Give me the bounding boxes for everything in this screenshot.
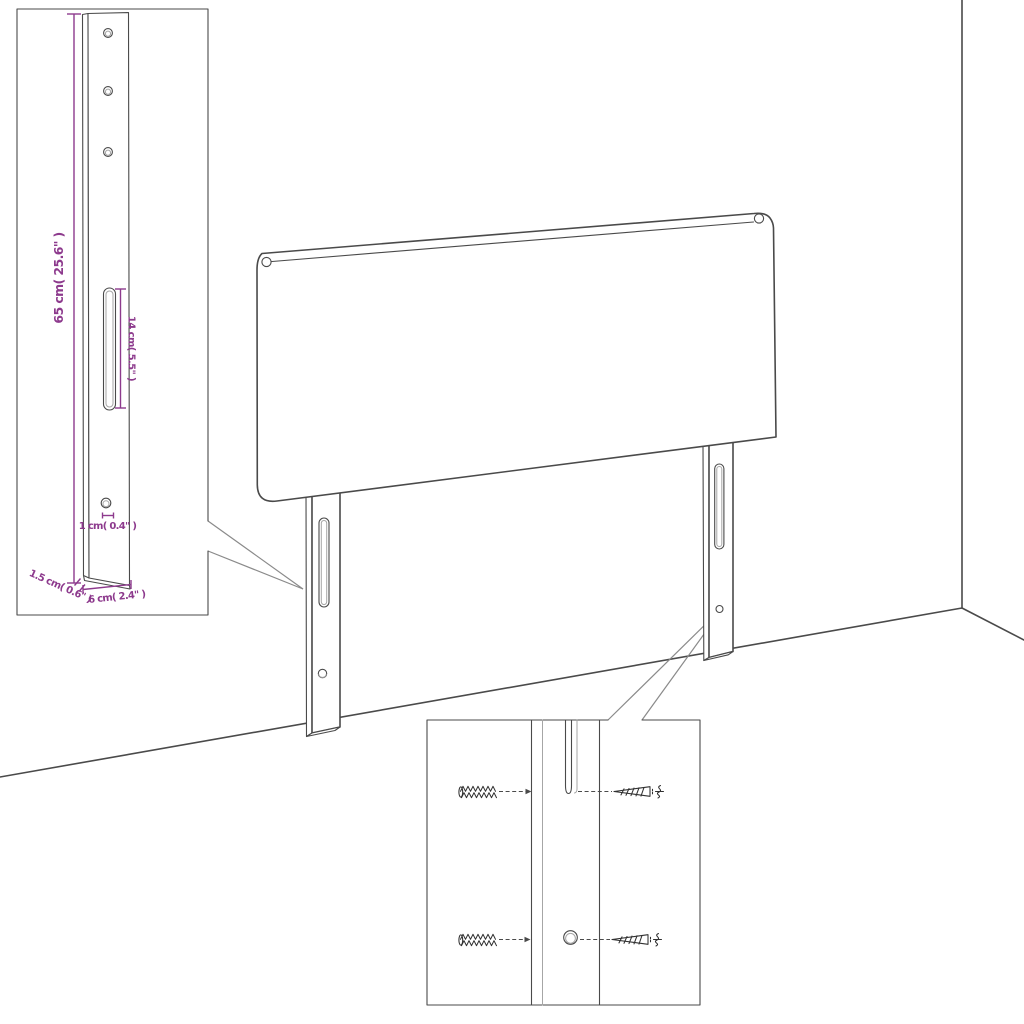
- arrowhead: [525, 937, 531, 943]
- callout-line: [608, 612, 718, 720]
- screw-detail-inset: [427, 720, 700, 1005]
- dimension-tick: [75, 579, 81, 586]
- fixing-row-slot: [459, 786, 664, 799]
- screw-head-star: [656, 786, 664, 799]
- dimension-leg-height: 65 cm( 25.6" ): [51, 14, 81, 583]
- slot-profile-inner: [575, 720, 578, 793]
- hole-diameter-label: 1 cm( 0.4" ): [79, 521, 137, 532]
- leg-width-label: 6 cm( 2.4" ): [88, 589, 146, 606]
- inset-leg-slot: [104, 288, 116, 410]
- headboard-left-leg: [306, 490, 340, 737]
- fixing-row-hole: [459, 934, 662, 947]
- right-leg-screw-hole: [716, 606, 723, 613]
- screw-head-star: [654, 934, 662, 947]
- floor-edge-left: [0, 608, 962, 777]
- callout-line: [208, 551, 303, 589]
- floor-edge-right: [962, 608, 1024, 640]
- headboard-dimension-diagram: 65 cm( 25.6" ) 14 cm( 5.5" ) 1 cm( 0.4" …: [0, 0, 1024, 1024]
- threaded-stud-icon: [459, 786, 497, 797]
- threaded-stud-icon: [459, 934, 497, 945]
- roll-edge-end-right: [754, 214, 763, 223]
- headboard-right-leg: [703, 440, 733, 661]
- leg-height-label: 65 cm( 25.6" ): [51, 232, 66, 323]
- dimension-leg-width: 6 cm( 2.4" ): [83, 580, 146, 606]
- left-leg-slot: [319, 518, 329, 607]
- slot-profile: [566, 720, 572, 794]
- callout-line: [208, 521, 303, 589]
- arrowhead: [526, 789, 532, 795]
- screw-icon: [614, 786, 664, 799]
- headboard-panel: [257, 213, 776, 501]
- left-leg-side-face: [306, 490, 312, 737]
- leg-detail-inset: 65 cm( 25.6" ) 14 cm( 5.5" ) 1 cm( 0.4" …: [17, 9, 208, 615]
- leg-profile: [532, 720, 600, 1005]
- right-leg-slot: [715, 464, 724, 549]
- slot-length-label: 14 cm( 5.5" ): [126, 316, 137, 381]
- right-leg-side-face: [703, 445, 709, 661]
- screw-icon: [612, 934, 662, 947]
- inset-leg-drawing: [83, 13, 131, 590]
- callout-left-inset: [208, 521, 303, 589]
- inset-frame: [427, 720, 700, 1005]
- diagram-canvas: 65 cm( 25.6" ) 14 cm( 5.5" ) 1 cm( 0.4" …: [0, 0, 1024, 1024]
- roll-edge-end-left: [262, 257, 271, 266]
